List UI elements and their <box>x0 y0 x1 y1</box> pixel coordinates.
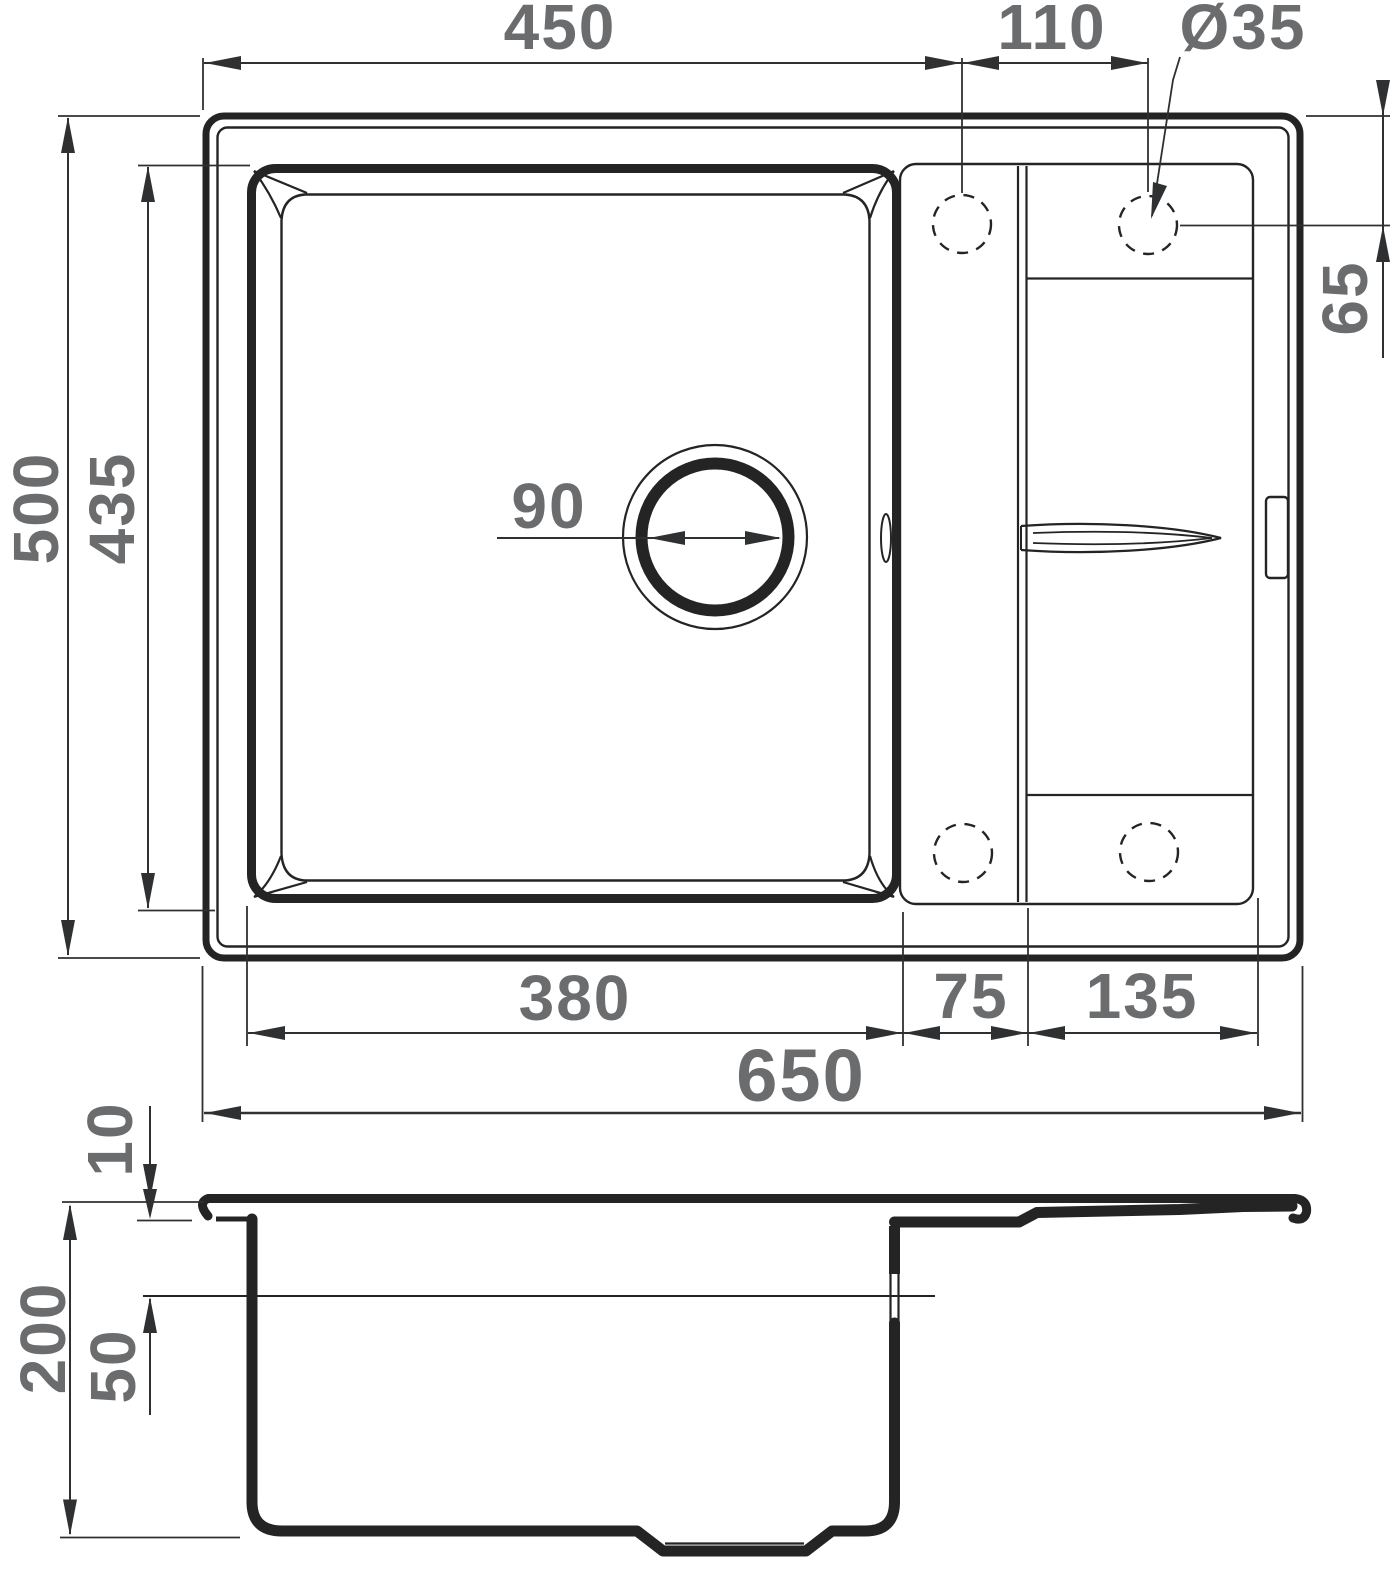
label-200: 200 <box>11 1282 75 1395</box>
label-450: 450 <box>504 0 617 59</box>
faucet-hole-top-right <box>1119 196 1177 254</box>
overflow-slot <box>881 514 891 562</box>
section-bowl <box>252 1219 895 1551</box>
drainboard-groove <box>1021 524 1221 552</box>
label-435: 435 <box>80 452 144 565</box>
label-110: 110 <box>997 0 1106 59</box>
side-view <box>60 1106 1307 1551</box>
label-650: 650 <box>736 1039 865 1113</box>
label-380: 380 <box>519 966 632 1030</box>
label-75: 75 <box>933 964 1008 1028</box>
arrow-50 <box>143 1297 157 1333</box>
faucet-hole-top-left <box>933 195 991 253</box>
label-500: 500 <box>4 452 68 565</box>
label-10: 10 <box>78 1101 142 1176</box>
drawing-canvas <box>0 0 1390 1570</box>
faucet-holes <box>933 195 1178 882</box>
label-d35: Ø35 <box>1180 0 1307 59</box>
faucet-hole-bottom-right <box>1120 823 1178 881</box>
label-135: 135 <box>1086 964 1199 1028</box>
label-90: 90 <box>511 474 586 538</box>
label-50: 50 <box>81 1328 145 1403</box>
leader-arrow <box>1151 182 1167 219</box>
sink-dimension-drawing: 450 110 Ø35 500 435 65 90 380 75 135 650… <box>0 0 1390 1570</box>
rim-accessory-slot <box>1266 497 1288 578</box>
section-deck-profile <box>895 1206 1293 1222</box>
label-65: 65 <box>1313 260 1377 335</box>
faucet-hole-bottom-left <box>934 824 992 882</box>
